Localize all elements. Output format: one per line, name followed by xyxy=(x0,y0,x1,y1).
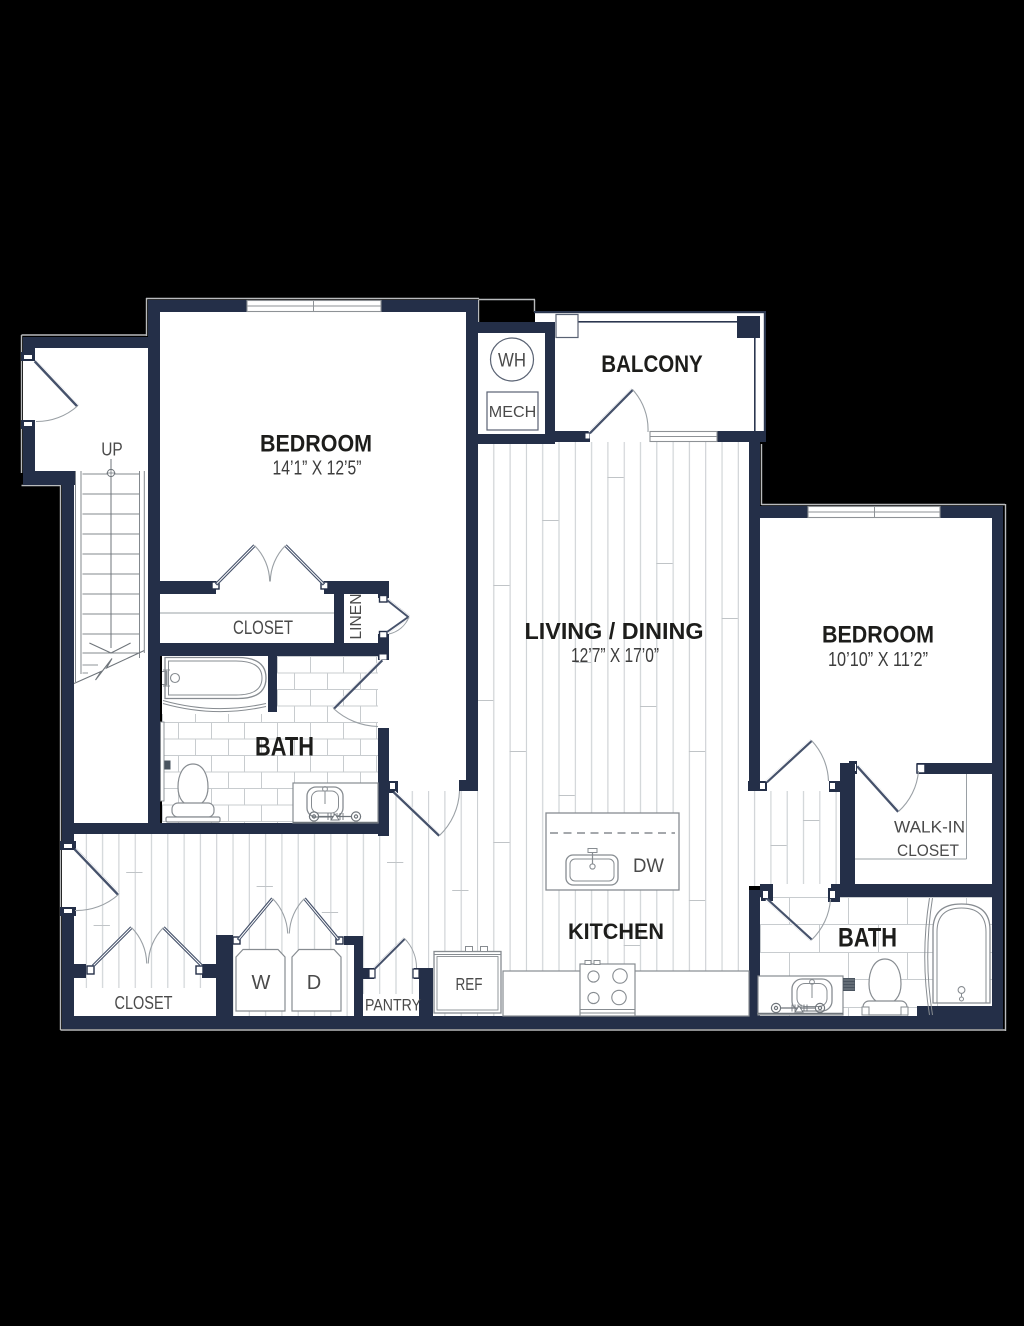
svg-text:CLOSET: CLOSET xyxy=(115,993,173,1013)
svg-text:BEDROOM: BEDROOM xyxy=(260,431,372,458)
svg-text:PANTRY: PANTRY xyxy=(365,997,421,1015)
svg-text:LINEN: LINEN xyxy=(348,594,365,640)
svg-text:D: D xyxy=(307,972,321,994)
svg-text:BEDROOM: BEDROOM xyxy=(822,622,934,649)
svg-text:W: W xyxy=(252,972,271,994)
svg-text:WH: WH xyxy=(498,351,526,372)
svg-text:12’7” X 17’0”: 12’7” X 17’0” xyxy=(571,645,659,667)
svg-text:14’1” X 12’5”: 14’1” X 12’5” xyxy=(273,458,362,480)
svg-text:REF: REF xyxy=(456,974,483,994)
svg-text:BATH: BATH xyxy=(255,732,314,762)
svg-text:10’10” X 11’2”: 10’10” X 11’2” xyxy=(828,649,928,671)
svg-text:WALK-IN: WALK-IN xyxy=(894,818,965,837)
svg-text:DW: DW xyxy=(633,856,664,877)
svg-text:KITCHEN: KITCHEN xyxy=(568,919,664,944)
svg-text:CLOSET: CLOSET xyxy=(233,618,293,639)
svg-text:MECH: MECH xyxy=(489,404,537,421)
svg-text:BALCONY: BALCONY xyxy=(601,351,703,378)
svg-text:CLOSET: CLOSET xyxy=(897,841,959,860)
svg-text:LIVING / DINING: LIVING / DINING xyxy=(525,618,704,644)
svg-text:UP: UP xyxy=(101,440,123,460)
svg-text:BATH: BATH xyxy=(838,923,897,953)
